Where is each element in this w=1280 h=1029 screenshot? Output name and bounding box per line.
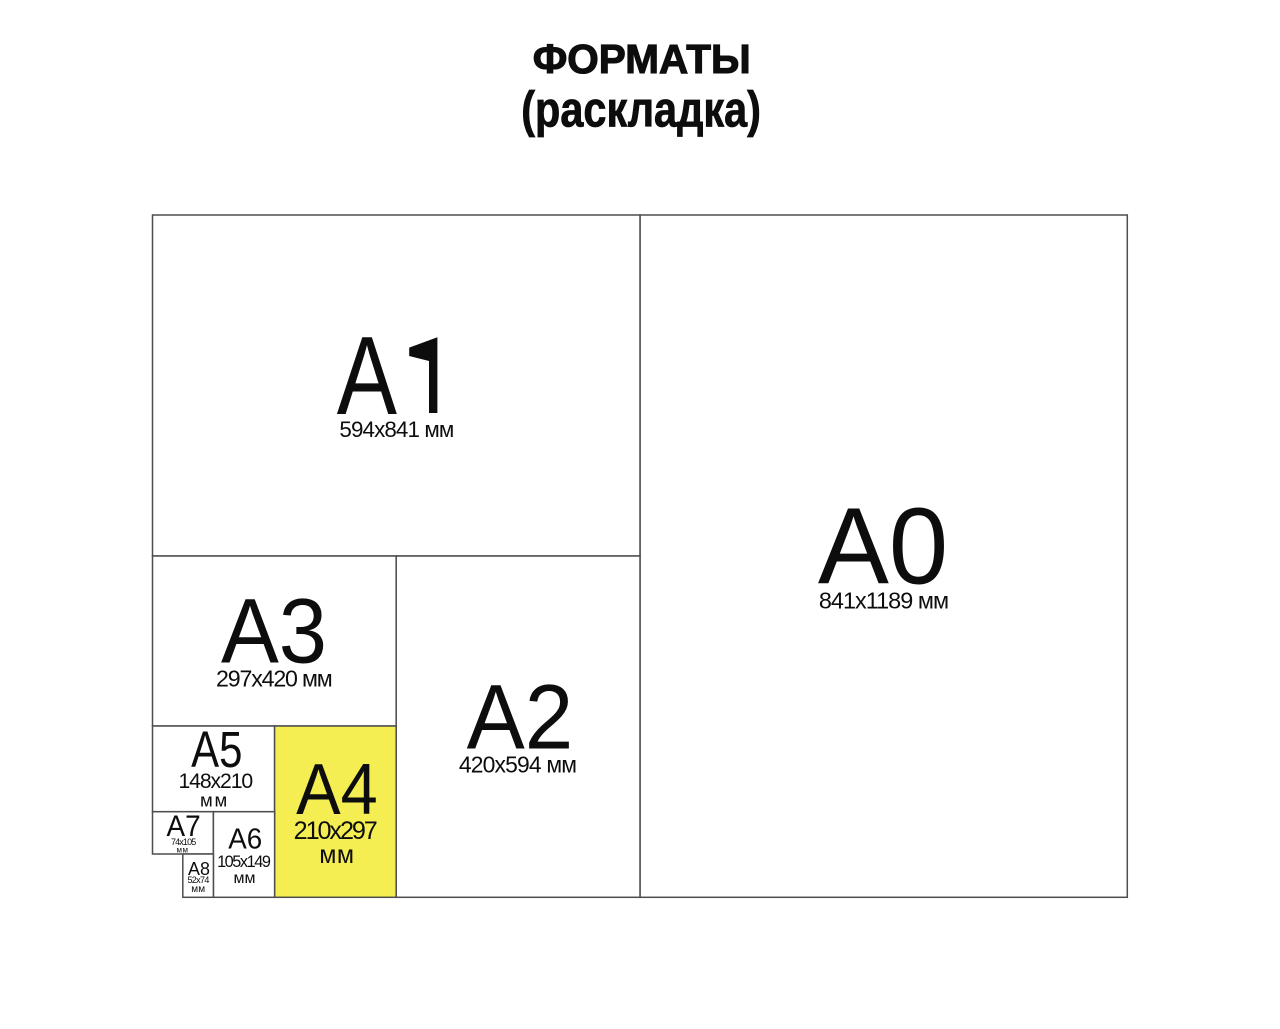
svg-text:мм: мм bbox=[200, 790, 229, 811]
svg-text:297x420 мм: 297x420 мм bbox=[216, 666, 332, 692]
svg-text:ФОРМАТЫ: ФОРМАТЫ bbox=[533, 36, 751, 82]
svg-text:594x841 мм: 594x841 мм bbox=[339, 417, 453, 442]
svg-text:420x594 мм: 420x594 мм bbox=[459, 751, 576, 777]
svg-text:мм: мм bbox=[234, 870, 256, 887]
svg-text:841x1189 мм: 841x1189 мм bbox=[819, 588, 948, 614]
svg-text:105x149: 105x149 bbox=[217, 853, 271, 871]
svg-text:мм: мм bbox=[177, 846, 189, 855]
svg-text:(раскладка): (раскладка) bbox=[521, 81, 761, 138]
svg-text:мм: мм bbox=[191, 884, 205, 895]
svg-text:мм: мм bbox=[319, 841, 354, 869]
svg-text:A6: A6 bbox=[228, 823, 262, 856]
